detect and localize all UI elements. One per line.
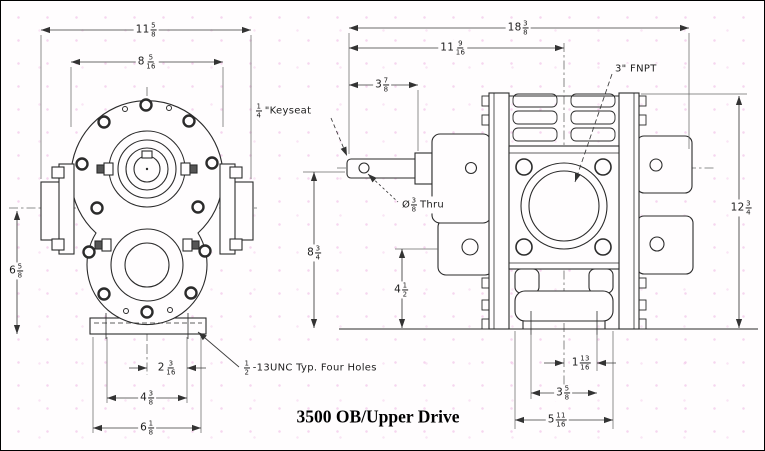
dim-side-shaft-length: 378 (373, 76, 391, 93)
dim-fraction: 18 (148, 419, 154, 436)
dim-whole: 5 (548, 414, 555, 426)
dim-fraction: 58 (17, 262, 23, 279)
note-fraction: 12 (244, 359, 250, 376)
dim-side-bracket-height: 412 (392, 281, 410, 298)
dim-whole: 6 (9, 265, 16, 277)
dim-fraction: 34 (315, 244, 321, 261)
dim-fraction: 1116 (556, 411, 567, 428)
label-text: 3" FNPT (615, 64, 657, 75)
dim-side-overall-height: 1234 (729, 199, 754, 216)
diameter-symbol: Ø (402, 200, 410, 211)
dim-whole: 6 (140, 422, 147, 434)
dim-fraction: 78 (383, 76, 389, 93)
note-mounting-holes: 12-13UNC Typ. Four Holes (241, 359, 379, 376)
label-fraction: 38 (411, 196, 417, 213)
dim-side-shaft-to-port: 11916 (438, 39, 467, 56)
dim-side-overall-length: 1838 (506, 19, 531, 36)
dim-fraction: 58 (151, 21, 157, 38)
dim-front-hole-to-centerline: 2316 (156, 359, 179, 376)
drawing-sheet: 1158 8516 658 2316 438 618 12-13UNC Typ.… (0, 0, 765, 451)
dim-side-foot-hole-spacing: 358 (554, 384, 572, 401)
label-text: "Keyseat (265, 106, 312, 117)
dim-front-port-height: 658 (7, 262, 25, 279)
label-shaft-thru-hole: Ø38Thru (400, 196, 446, 213)
front-view (41, 100, 253, 340)
dim-fraction: 1316 (580, 354, 591, 371)
label-text: Thru (420, 200, 444, 211)
dim-fraction: 516 (146, 53, 157, 70)
note-text: -13UNC Typ. Four Holes (253, 363, 377, 374)
dim-fraction: 38 (148, 389, 154, 406)
dim-whole: 4 (140, 392, 147, 404)
dim-front-hole-spacing: 438 (138, 389, 156, 406)
dim-fraction: 34 (746, 199, 752, 216)
dim-fraction: 12 (402, 281, 408, 298)
dim-side-shaft-height: 834 (305, 244, 323, 261)
dim-whole: 2 (158, 362, 165, 374)
dim-whole: 11 (136, 24, 150, 36)
label-fraction: 14 (256, 102, 262, 119)
dim-side-foot-hole-to-centerline: 11316 (570, 354, 593, 371)
dim-whole: 3 (375, 79, 382, 91)
dim-whole: 12 (731, 202, 745, 214)
label-keyseat: 14"Keyseat (253, 102, 313, 119)
dim-front-flange-width: 8516 (136, 53, 159, 70)
drawing-title: 3500 OB/Upper Drive (296, 407, 459, 428)
dim-fraction: 38 (523, 19, 529, 36)
dim-side-foot-width: 51116 (546, 411, 569, 428)
dim-whole: 1 (572, 357, 579, 369)
dim-fraction: 316 (166, 359, 177, 376)
dim-whole: 4 (394, 284, 401, 296)
dim-whole: 8 (307, 247, 314, 259)
dim-front-base-width: 618 (138, 419, 156, 436)
dim-whole: 3 (556, 387, 563, 399)
label-port-fnpt: 3" FNPT (613, 64, 659, 75)
dim-whole: 8 (138, 56, 145, 68)
dim-fraction: 58 (564, 384, 570, 401)
dim-fraction: 916 (455, 39, 466, 56)
dim-whole: 18 (508, 22, 522, 34)
dim-whole: 11 (440, 42, 454, 54)
dim-front-overall-width: 1158 (134, 21, 159, 38)
